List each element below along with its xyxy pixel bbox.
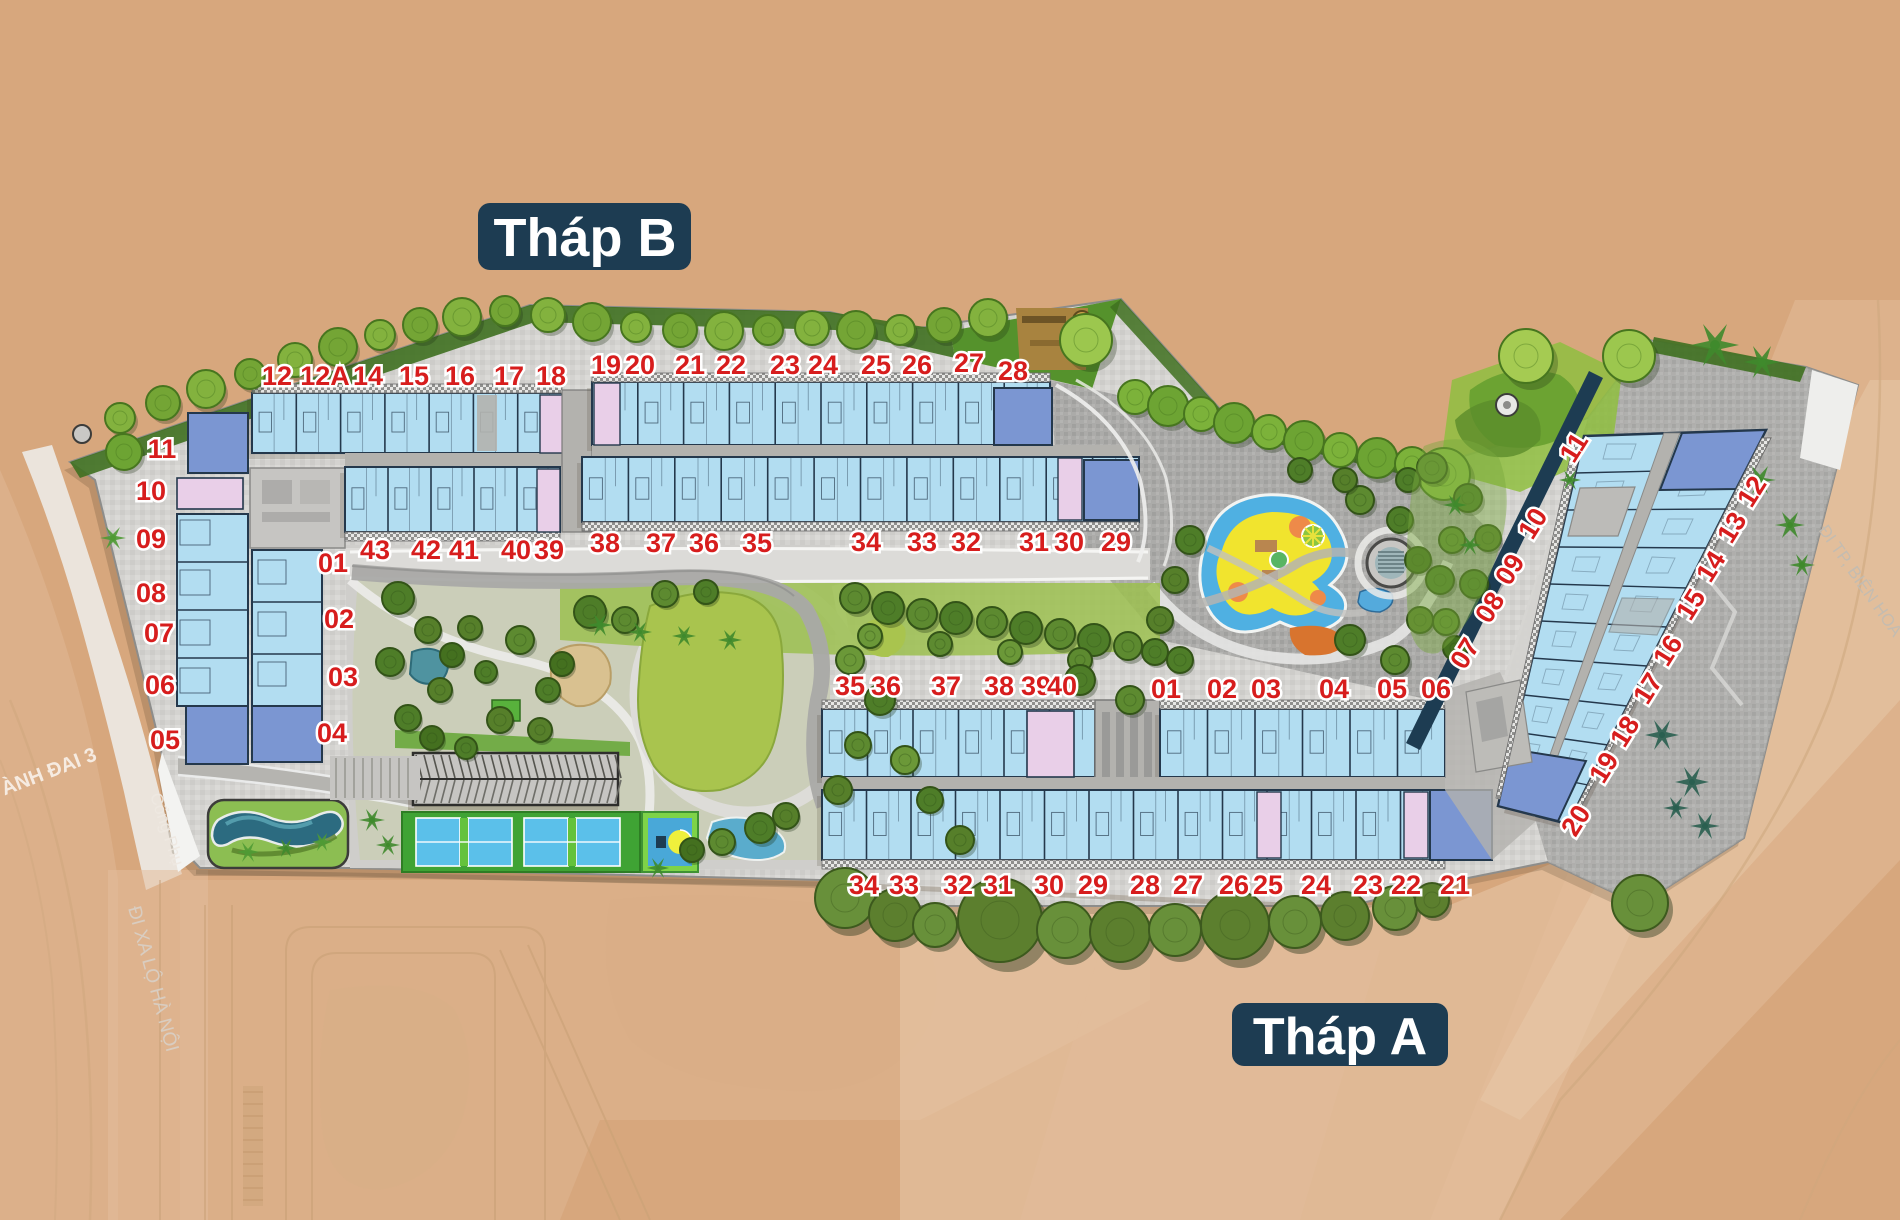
svg-text:21: 21 [1440,870,1470,900]
svg-text:25: 25 [861,350,891,380]
svg-text:30: 30 [1034,870,1064,900]
svg-text:19: 19 [591,350,621,380]
svg-text:36: 36 [689,528,719,558]
svg-text:10: 10 [136,476,166,506]
svg-text:25: 25 [1253,870,1283,900]
svg-text:28: 28 [998,356,1028,386]
svg-text:26: 26 [1219,870,1249,900]
svg-text:32: 32 [943,870,973,900]
svg-text:18: 18 [536,361,566,391]
svg-text:23: 23 [1353,870,1383,900]
svg-text:37: 37 [646,528,676,558]
svg-text:40: 40 [501,535,531,565]
svg-text:02: 02 [1207,674,1237,704]
svg-text:06: 06 [1421,674,1451,704]
svg-text:05: 05 [150,725,180,755]
svg-text:30: 30 [1054,527,1084,557]
svg-text:23: 23 [770,350,800,380]
svg-text:12: 12 [262,361,292,391]
svg-text:29: 29 [1078,870,1108,900]
svg-text:22: 22 [716,350,746,380]
svg-text:09: 09 [136,524,166,554]
svg-text:15: 15 [399,361,429,391]
svg-text:29: 29 [1101,527,1131,557]
svg-text:27: 27 [1173,870,1203,900]
svg-text:22: 22 [1391,870,1421,900]
svg-text:04: 04 [1319,674,1349,704]
svg-text:33: 33 [889,870,919,900]
svg-text:16: 16 [445,361,475,391]
svg-text:03: 03 [328,662,358,692]
svg-text:14: 14 [353,361,383,391]
svg-text:01: 01 [1151,674,1181,704]
svg-text:06: 06 [145,670,175,700]
svg-text:20: 20 [625,350,655,380]
svg-text:38: 38 [590,528,620,558]
svg-text:35: 35 [835,671,865,701]
svg-text:04: 04 [317,718,347,748]
svg-text:34: 34 [849,870,879,900]
svg-text:37: 37 [931,671,961,701]
svg-text:12A: 12A [300,361,350,391]
svg-text:08: 08 [136,578,166,608]
svg-text:34: 34 [851,527,881,557]
svg-text:03: 03 [1251,674,1281,704]
svg-text:17: 17 [494,361,524,391]
svg-text:38: 38 [984,671,1014,701]
svg-text:01: 01 [318,548,348,578]
svg-text:24: 24 [1301,870,1331,900]
svg-text:31: 31 [983,870,1013,900]
svg-text:43: 43 [360,535,390,565]
svg-text:Tháp B: Tháp B [494,208,677,268]
svg-text:31: 31 [1019,527,1049,557]
svg-text:05: 05 [1377,674,1407,704]
svg-text:32: 32 [951,527,981,557]
svg-text:41: 41 [449,535,479,565]
svg-text:07: 07 [144,618,174,648]
svg-text:28: 28 [1130,870,1160,900]
svg-text:21: 21 [675,350,705,380]
svg-text:02: 02 [324,604,354,634]
svg-text:27: 27 [954,348,984,378]
svg-text:39: 39 [534,535,564,565]
svg-text:24: 24 [808,350,838,380]
svg-text:40: 40 [1047,671,1077,701]
svg-text:11: 11 [148,434,177,464]
svg-text:Tháp A: Tháp A [1253,1008,1427,1066]
svg-text:36: 36 [871,671,901,701]
svg-text:42: 42 [411,535,441,565]
svg-text:35: 35 [742,528,772,558]
svg-text:26: 26 [902,350,932,380]
svg-text:33: 33 [907,527,937,557]
